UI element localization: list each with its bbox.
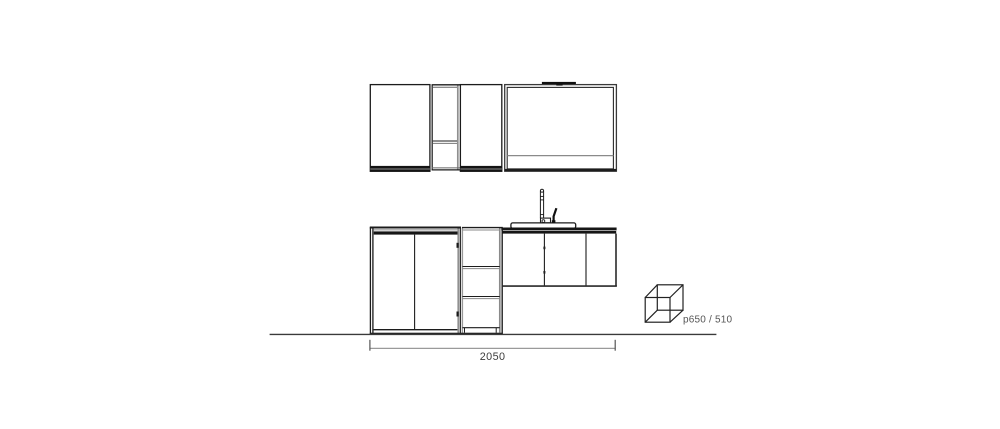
svg-text:2050: 2050 [480,351,506,363]
svg-text:p650 / 510: p650 / 510 [683,315,733,326]
